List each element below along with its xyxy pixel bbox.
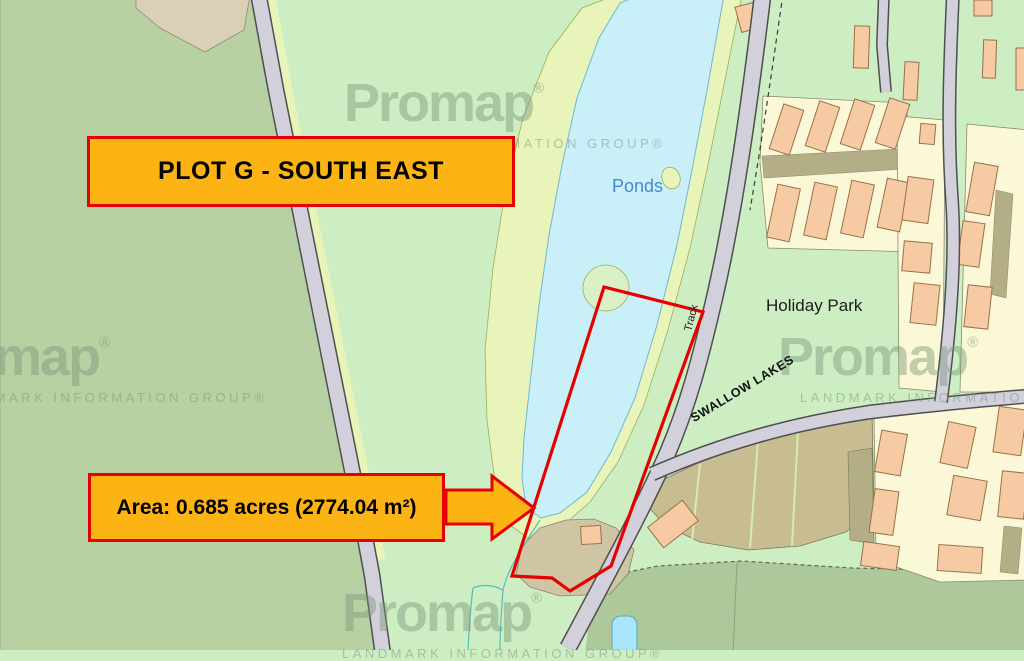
road-stub (882, 0, 886, 92)
plot-area-box: Area: 0.685 acres (2774.04 m²) (88, 473, 445, 542)
plot-area-text: Area: 0.685 acres (2774.04 m²) (116, 496, 416, 520)
small-pond (612, 616, 637, 650)
plot-title-box: PLOT G - SOUTH EAST (87, 136, 515, 207)
map-canvas (0, 0, 1024, 650)
holiday-park-label: Holiday Park (766, 296, 862, 316)
plot-title-text: PLOT G - SOUTH EAST (158, 157, 444, 186)
ponds-label: Ponds (612, 176, 663, 197)
